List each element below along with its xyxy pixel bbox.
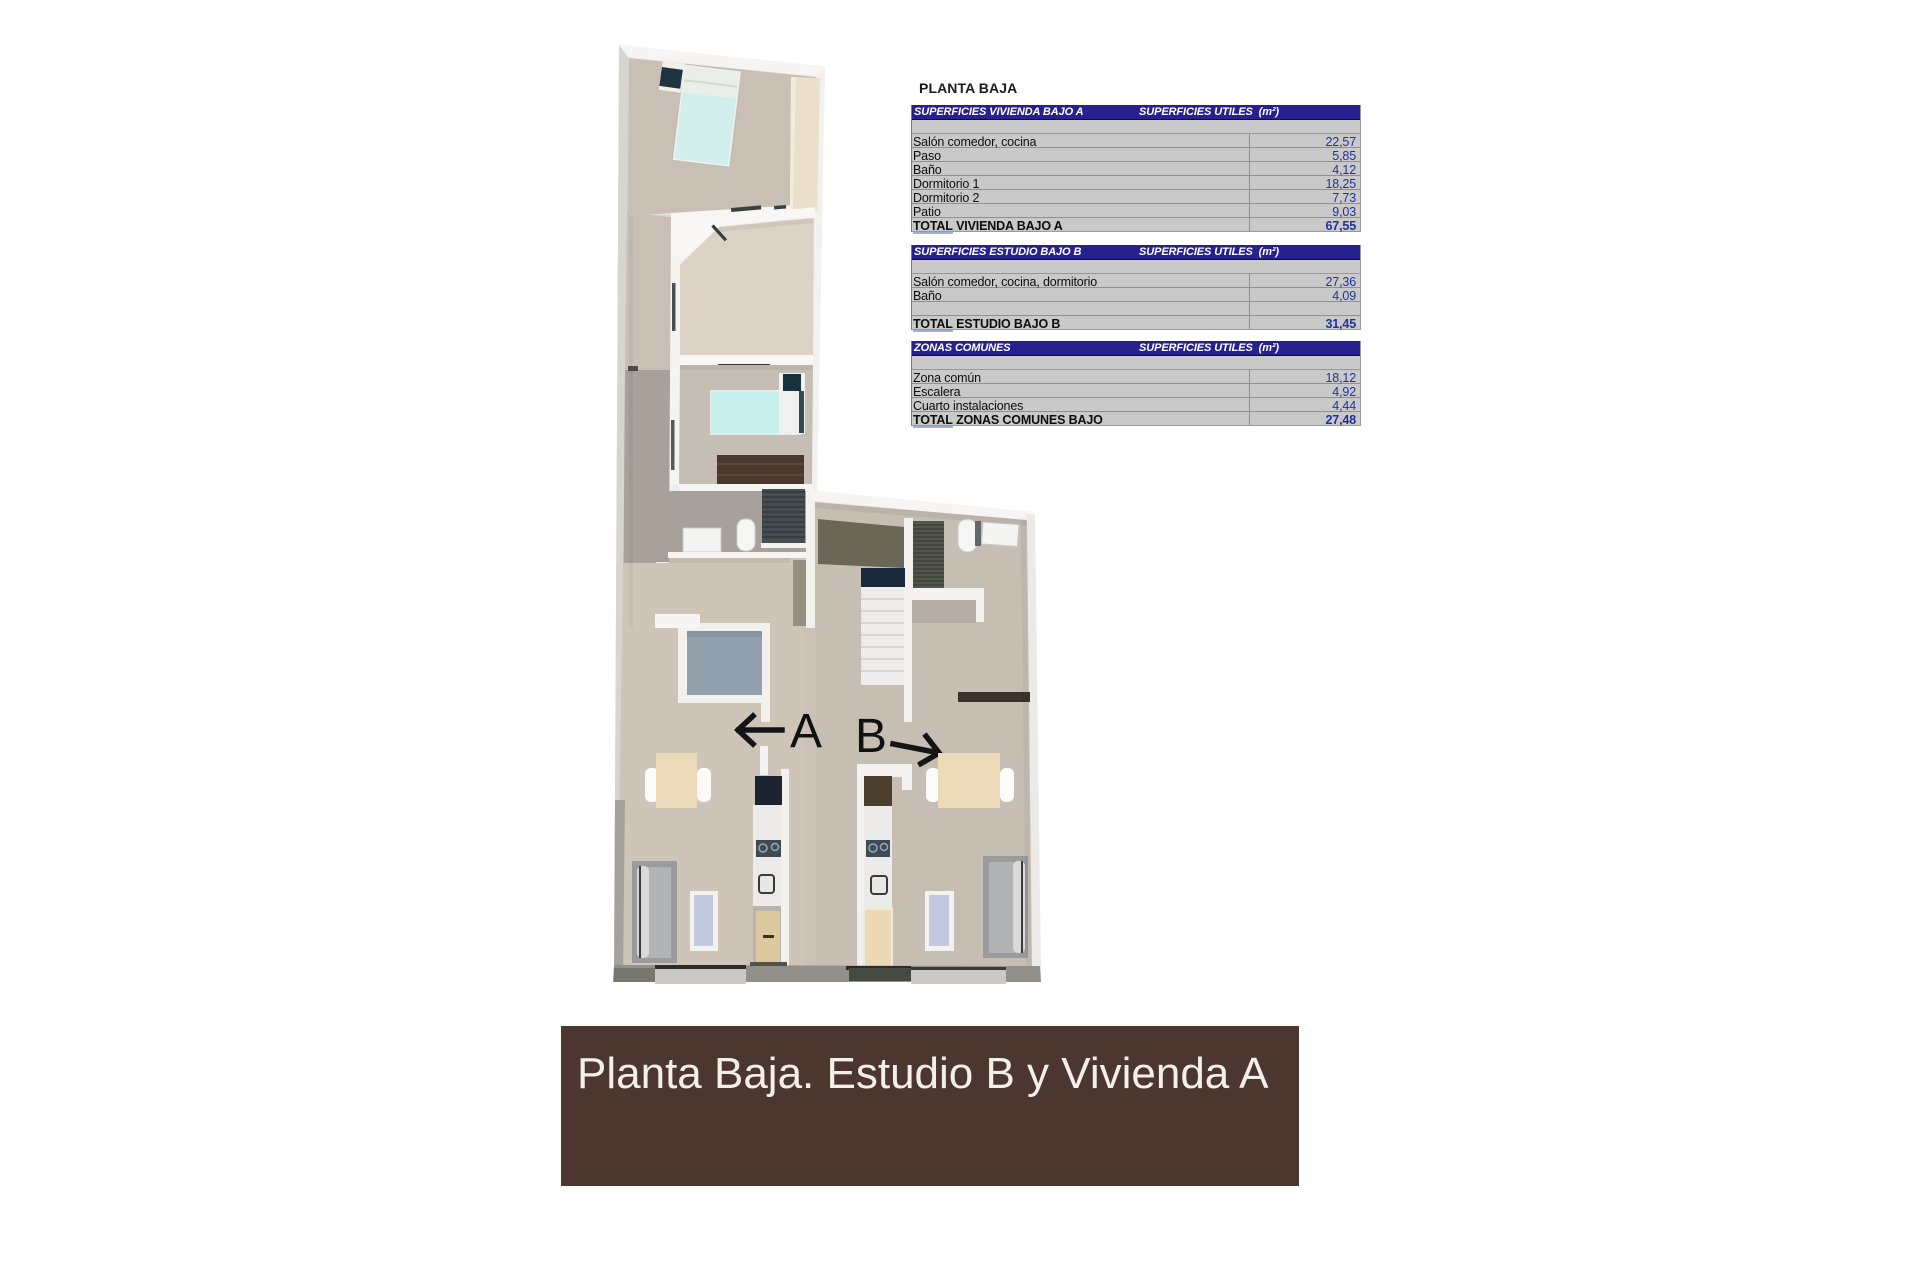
- svg-text:B: B: [855, 710, 887, 763]
- svg-text:A: A: [790, 705, 822, 758]
